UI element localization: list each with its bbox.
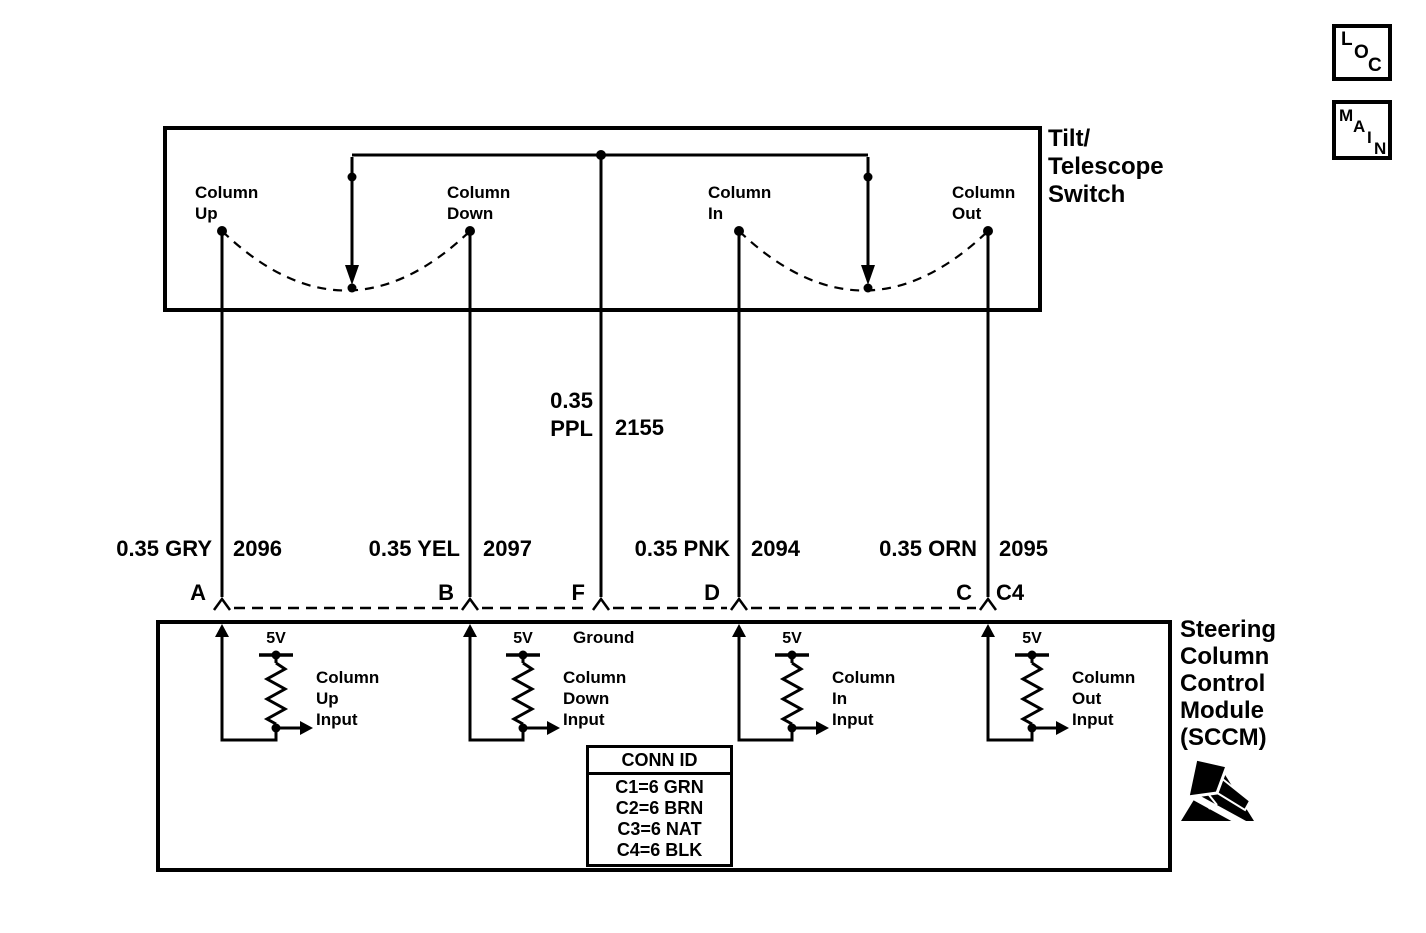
input-arrowhead-icon: [547, 721, 560, 735]
main-letter: A: [1353, 118, 1365, 135]
input-label-column-down: Column Down Input: [563, 667, 626, 730]
input-label-column-up: Column Up Input: [316, 667, 379, 730]
input-arrowhead-icon: [1056, 721, 1069, 735]
ground-label: Ground: [573, 627, 634, 648]
resistor-icon: [514, 663, 532, 724]
conn-id-row: C1=6 GRN: [589, 777, 730, 798]
pin-a-label: A: [190, 580, 206, 606]
input-label-column-in: Column In Input: [832, 667, 895, 730]
contact-label-column-in: Column In: [708, 182, 771, 224]
sccm-title: Steering Column Control Module (SCCM): [1180, 616, 1276, 751]
pin-f-label: F: [572, 580, 585, 606]
contact-label-column-down: Column Down: [447, 182, 510, 224]
pin-b-label: B: [438, 580, 454, 606]
up-arrowhead-icon: [215, 624, 229, 637]
wire-f-circuit: 2155: [615, 415, 664, 441]
input-arrowhead-icon: [816, 721, 829, 735]
resistor-icon: [267, 663, 285, 724]
wire-d-gauge-color: 0.35 PNK: [635, 536, 730, 562]
resistor-icon: [783, 663, 801, 724]
connector-id-label: C4: [996, 580, 1024, 606]
main-letter: M: [1339, 107, 1353, 124]
main-letter: N: [1374, 140, 1386, 157]
wire-c-gauge-color: 0.35 ORN: [879, 536, 977, 562]
wire-f-gauge-color: 0.35 PPL: [550, 387, 593, 443]
supply-5v-label: 5V: [509, 630, 537, 648]
wire-a-gauge-color: 0.35 GRY: [116, 536, 212, 562]
up-arrowhead-icon: [981, 624, 995, 637]
wiring-diagram-page: L O C M A I N Tilt/ Telescope Switch Col…: [0, 0, 1426, 933]
supply-5v-label: 5V: [778, 630, 806, 648]
esd-warning-icon: [1181, 759, 1254, 825]
loc-letter: L: [1341, 30, 1353, 49]
conn-id-row: C3=6 NAT: [589, 819, 730, 840]
input-label-column-out: Column Out Input: [1072, 667, 1135, 730]
junction-dots: [217, 150, 993, 293]
up-arrowhead-icon: [732, 624, 746, 637]
loc-letter: C: [1368, 56, 1382, 75]
pin-c-label: C: [956, 580, 972, 606]
input-arrowhead-icon: [300, 721, 313, 735]
loc-letter: O: [1354, 43, 1369, 62]
up-arrowhead-icon: [463, 624, 477, 637]
conn-id-row: C2=6 BRN: [589, 798, 730, 819]
wire-b-gauge-color: 0.35 YEL: [369, 536, 460, 562]
supply-5v-label: 5V: [262, 630, 290, 648]
contact-label-column-out: Column Out: [952, 182, 1015, 224]
conn-id-table-header: CONN ID: [589, 748, 730, 775]
wire-a-circuit: 2096: [233, 536, 282, 562]
pin-d-label: D: [704, 580, 720, 606]
contact-label-column-up: Column Up: [195, 182, 258, 224]
switch-arc-right: [739, 231, 988, 291]
wire-c-circuit: 2095: [999, 536, 1048, 562]
tilt-switch-title: Tilt/ Telescope Switch: [1048, 125, 1164, 209]
main-letter: I: [1367, 129, 1372, 146]
switch-arc-left: [222, 231, 470, 291]
wire-d-circuit: 2094: [751, 536, 800, 562]
resistor-icon: [1023, 663, 1041, 724]
loc-tag-box: L O C: [1332, 24, 1392, 81]
main-tag-box: M A I N: [1332, 100, 1392, 160]
supply-5v-label: 5V: [1018, 630, 1046, 648]
wire-b-circuit: 2097: [483, 536, 532, 562]
conn-id-row: C4=6 BLK: [589, 840, 730, 861]
wiper-right-arrowhead-icon: [861, 265, 875, 285]
wiper-left-arrowhead-icon: [345, 265, 359, 285]
conn-id-table: CONN ID C1=6 GRN C2=6 BRN C3=6 NAT C4=6 …: [586, 745, 733, 867]
